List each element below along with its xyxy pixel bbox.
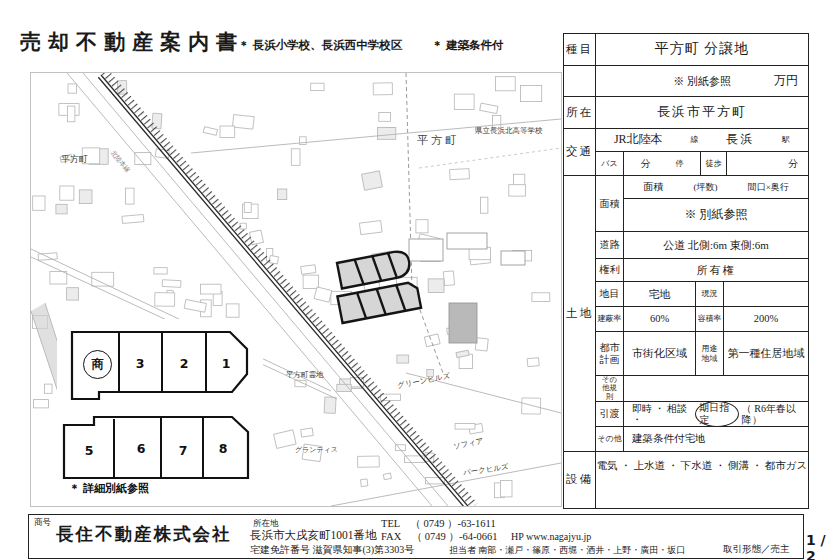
utilities-value: 電気 ・ 上水道 ・ 下水道 ・ 側溝 ・ 都市ガス: [596, 452, 808, 508]
building-condition-note: ＊ 建築条件付: [431, 39, 503, 51]
walk-label: 徒歩: [701, 152, 727, 176]
area-value: ※ 別紙参照: [624, 199, 808, 232]
map-label-town-left: 平方町: [61, 153, 88, 166]
lot-number-6: 6: [131, 441, 151, 456]
company-footer: 商号 長住不動産株式会社 所在地 長浜市大戌亥町1001番地 宅建免許番号 滋賀…: [28, 514, 804, 559]
category-value: 平方町 分譲地: [596, 34, 808, 66]
location-value: 長浜市平方町: [596, 97, 808, 129]
road-value: 公道 北側:6m 東側:6m: [624, 232, 808, 259]
company-address: 長浜市大戌亥町1001番地: [250, 528, 377, 543]
header-notes: ＊ 長浜小学校、長浜西中学校区 ＊ 建築条件付: [238, 38, 530, 53]
row-label-category: 種目: [564, 34, 596, 66]
land-category-label: 地目: [596, 282, 624, 307]
current-state-label: 現況: [696, 282, 724, 307]
price-row: ※ 別紙参照 万円: [596, 66, 808, 97]
other-value: 建築条件付宅地: [624, 427, 808, 452]
other-rules-label: その他規則: [596, 376, 624, 402]
trade-name-label: 商号: [34, 517, 51, 529]
coverage-label: 建蔽率: [596, 307, 624, 332]
row-label-price: [564, 66, 596, 97]
area-h2: (坪数): [693, 182, 717, 192]
map-boundary-dashes: [419, 148, 561, 168]
website: HP www.nagajyu.jp: [511, 531, 591, 542]
transaction-type: 取引形態／売主: [723, 543, 790, 556]
company-name: 長住不動産株式会社: [56, 522, 232, 546]
school-buildings: [409, 233, 525, 343]
far-label: 容積率: [696, 307, 724, 332]
row-label-land: 土地: [564, 176, 596, 452]
lot-number-3: 3: [130, 356, 150, 371]
page-indicator: 1 / 2: [806, 532, 840, 560]
map-label-cemetery: 平方町霊地: [286, 370, 324, 380]
staff-names: 担当者 南部・瀬戸・篠原・西堀・酒井・上野・廣田・坂口: [449, 544, 685, 557]
row-label-location: 所在: [564, 97, 596, 129]
map-label-town-right: 平方町: [417, 133, 459, 148]
station-name: 長浜: [726, 133, 754, 147]
road-label: 道路: [596, 232, 624, 259]
area-h3: 間口×奥行: [748, 182, 789, 192]
handover-pre: 即時 ・ 相談 ・: [632, 403, 692, 426]
station-suffix: 駅: [782, 135, 790, 144]
license-number: 宅建免許番号 滋賀県知事(3)第3303号: [250, 543, 414, 557]
rail-suffix: 線: [690, 135, 698, 144]
handover-post: （ R6年春以降）: [742, 403, 808, 426]
lot-layout-inset: [57, 319, 263, 506]
rights-label: 権利: [596, 259, 624, 282]
lot-number-8: 8: [213, 441, 233, 456]
land-category-value: 宅地: [624, 282, 696, 307]
bus-min-unit: 分: [641, 158, 651, 170]
school-gym: [449, 303, 477, 343]
utilities-label: 設備: [564, 452, 596, 508]
school-district-note: ＊ 長浜小学校、長浜西中学校区: [238, 39, 402, 51]
sale-property-flyer: 売却不動産案内書 ＊ 長浜小学校、長浜西中学校区 ＊ 建築条件付: [0, 0, 840, 560]
zoning-label: 用途地域: [696, 332, 724, 376]
lot-number-5: 5: [79, 443, 99, 458]
lot-sho-circle: 商: [83, 350, 112, 379]
handover-circled: 期日指定: [695, 402, 739, 427]
lot-number-7: 7: [173, 443, 193, 458]
lot-number-1: 1: [216, 356, 236, 371]
inset-detail-note: ＊ 詳細別紙参照: [69, 481, 149, 496]
other-label: その他: [596, 427, 624, 452]
handover-label: 引渡: [596, 402, 624, 427]
map-label-grantis: グランティス: [295, 445, 338, 455]
lot-number-2: 2: [174, 356, 194, 371]
price-unit: 万円: [774, 74, 798, 88]
page-title: 売却不動産案内書: [20, 28, 244, 56]
area-h1: 面積: [643, 181, 663, 193]
zoning-value: 第一種住居地域: [724, 332, 808, 376]
area-label: 面積: [596, 176, 624, 232]
location-map: 平方町 平方町 県立長浜北高等学校 北陸本線 平方町霊地 グリーンヒルズ グラン…: [30, 72, 562, 507]
area-header-row: 面積 (坪数) 間口×奥行: [624, 176, 808, 199]
far-value: 200%: [724, 307, 808, 332]
handover-value: 即時 ・ 相談 ・ 期日指定 （ R6年春以降）: [624, 402, 808, 427]
phone-number: TEL （ 0749 ）-63-1611: [381, 517, 496, 531]
walk-minutes-cell: 分: [727, 152, 808, 176]
city-planning-value: 市街化区域: [624, 332, 696, 376]
bus-stop-unit: 停: [676, 159, 684, 168]
rights-value: 所有権: [624, 259, 808, 282]
property-detail-table: 種目 平方町 分譲地 ※ 別紙参照 万円 所在 長浜市平方町 交通 JR北陸本 …: [563, 33, 809, 509]
row-label-transport: 交通: [564, 129, 596, 176]
city-planning-label: 都市計画: [596, 332, 624, 376]
map-label-school: 県立長浜北高等学校: [475, 126, 543, 136]
coverage-value: 60%: [624, 307, 696, 332]
fax-number: FAX （ 0749 ）-64-0661: [381, 530, 497, 544]
transport-rail-row: JR北陸本 線 長浜 駅: [596, 129, 808, 152]
price-note: ※ 別紙参照: [673, 75, 731, 88]
rail-name: JR北陸本: [614, 133, 663, 147]
other-rules-value: [624, 376, 808, 402]
bus-minutes-cell: 分 停: [624, 152, 701, 176]
bus-label: バス: [596, 152, 624, 176]
current-state-value: [724, 282, 808, 307]
